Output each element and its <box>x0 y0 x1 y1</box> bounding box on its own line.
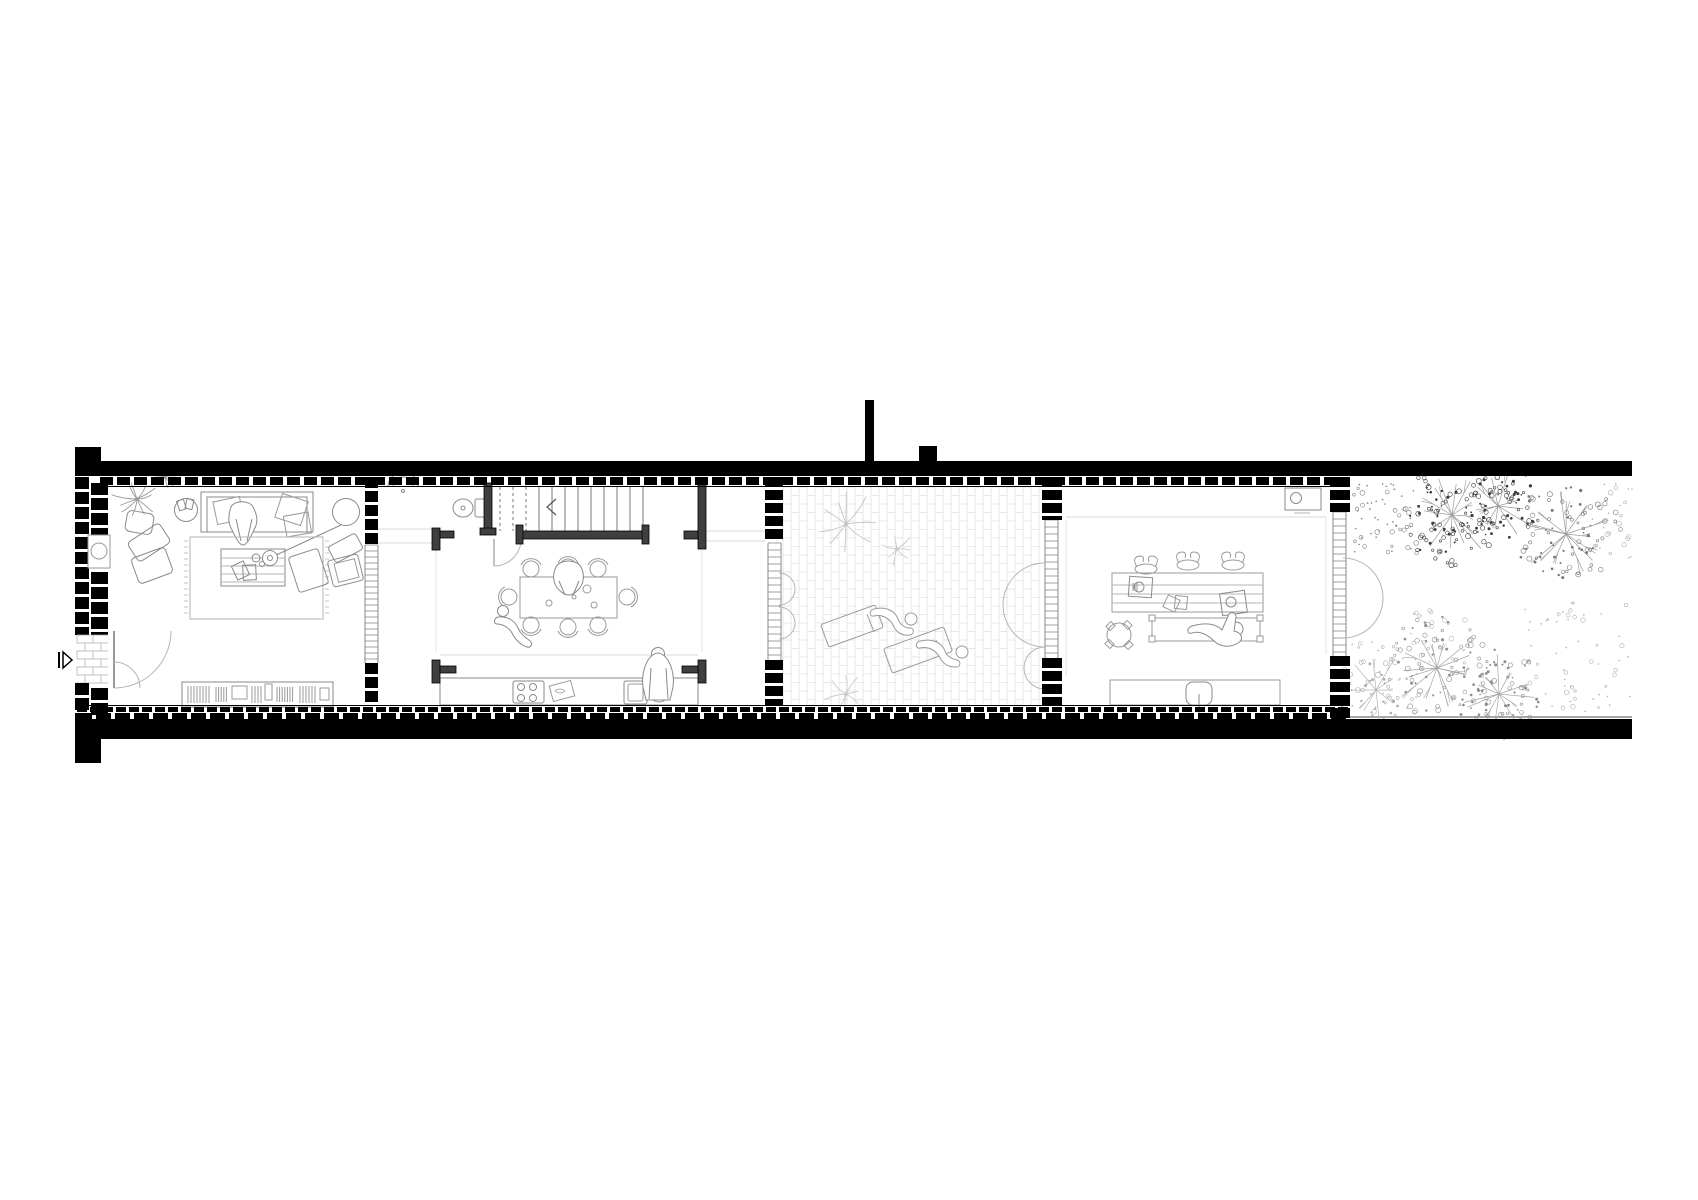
floor-plan <box>0 0 1698 1200</box>
courtyard-furniture <box>819 492 968 715</box>
entrance-marker <box>59 652 72 668</box>
glazed-partitions <box>768 512 1383 689</box>
living-room-furniture <box>112 467 364 707</box>
brick-walls <box>75 477 1350 719</box>
courtyard-paving <box>783 487 1039 705</box>
studio-furniture <box>1105 488 1321 719</box>
floor-plan-canvas <box>0 0 1698 1200</box>
